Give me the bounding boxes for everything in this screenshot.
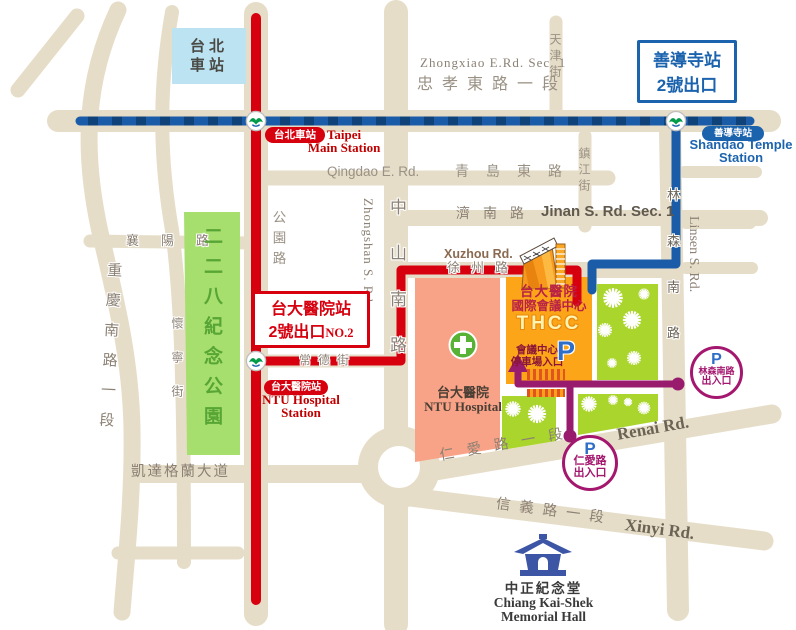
cks-memorial-hall-icon — [512, 534, 574, 580]
ntu-station-name-en-2: Station — [258, 407, 344, 420]
parking-p-icon: P — [693, 353, 740, 366]
road-label-ketagalan-zh: 凱達格蘭大道 — [131, 465, 230, 480]
road-label-tianjin-zh: 天津街 — [549, 33, 561, 81]
shandao-exit2-line1: 善導寺站 — [640, 48, 734, 73]
taipei-station-name-en: Taipei Main Station — [300, 129, 388, 154]
shandao-exit2-line2: 2號出口 — [640, 73, 734, 98]
cks-label-en1: Chiang Kai-Shek — [486, 596, 601, 610]
cks-memorial-label: 中正紀念堂 Chiang Kai-Shek Memorial Hall — [486, 582, 601, 624]
shandao-station-name-en: Shandao Temple Station — [686, 139, 796, 164]
driveway-hatch-upper — [527, 369, 565, 380]
road-label-zhongxiao-en: Zhongxiao E.Rd. Sec. 1 — [420, 56, 566, 69]
road-label-zhongshan-zh: 中山南路 — [388, 198, 405, 382]
parking-linsen-line1: 林森南路 — [693, 366, 740, 376]
road-label-xuzhou-en: Xuzhou Rd. — [444, 248, 513, 261]
mrt-station-icon-taipei — [245, 110, 267, 132]
thcc-label-line2: 國際會議中心 — [504, 299, 594, 314]
mrt-logo-icon — [245, 350, 267, 372]
parking-renai-line2: 出入口 — [565, 467, 615, 479]
road-label-zhenjiang-zh: 鎮江街 — [578, 147, 590, 195]
mrt-logo-icon — [245, 110, 267, 132]
road-label-gongyuan-zh: 公園路 — [271, 210, 285, 272]
taipei-station-building: 台北 車站 — [172, 28, 246, 84]
parking-renai-line1: 仁愛路 — [565, 455, 615, 467]
thcc-acronym: THCC — [504, 314, 594, 334]
ntu-hospital-label: 台大醫院 NTU Hospital — [420, 386, 506, 414]
road-label-linsen-zh: 林森南路 — [666, 188, 679, 372]
driveway-hatch-lower — [527, 389, 565, 397]
parking-renai-entrance-sign: P 仁愛路 出入口 — [562, 435, 618, 491]
ntu-exit2-text: 2號出口 — [268, 324, 325, 341]
cks-label-zh: 中正紀念堂 — [486, 582, 601, 596]
ntu-exit2-box: 台大醫院站 2號出口NO.2 — [252, 291, 370, 348]
hospital-cross-icon — [448, 330, 478, 360]
road-label-zhongxiao-zh: 忠孝東路一段 — [417, 77, 567, 93]
taipei-access-map: 台北 車站 — [0, 0, 796, 630]
road-label-qingdao-en: Qingdao E. Rd. — [327, 165, 419, 179]
taipei-station-building-label-1: 台北 — [172, 37, 246, 56]
ntu-exit2-no: NO.2 — [325, 326, 353, 340]
mrt-logo-icon — [665, 110, 687, 132]
shandao-station-name-en-2: Station — [686, 152, 796, 165]
road-label-changde-zh: 常德街 — [299, 354, 356, 366]
shandao-exit2-box: 善導寺站 2號出口 — [637, 40, 737, 103]
ntu-hospital-label-en: NTU Hospital — [420, 400, 506, 414]
parking-route-dot-linsen — [672, 378, 685, 391]
mrt-station-icon-shandao — [665, 110, 687, 132]
road-label-huaining-zh: 懷寧街 — [171, 317, 183, 419]
parking-linsen-line2: 出入口 — [693, 376, 740, 387]
taipei-station-building-label-2: 車站 — [172, 56, 246, 75]
road-label-jinan-en: Jinan S. Rd. Sec. 1 — [541, 204, 674, 219]
parking-p-icon: P — [565, 442, 615, 455]
cks-label-en2: Memorial Hall — [486, 610, 601, 624]
taipei-station-name-en-2: Main Station — [300, 142, 388, 155]
road-label-jinan-zh: 濟南路 — [456, 206, 537, 220]
thcc-parking-p: P — [557, 338, 575, 365]
ntu-exit2-line2: 2號出口NO.2 — [255, 321, 367, 345]
ntu-hospital-area — [415, 278, 500, 462]
parking-linsen-entrance-sign: P 林森南路 出入口 — [690, 346, 743, 399]
228-park-label: 二二八紀念公園 — [202, 226, 221, 436]
ntu-exit2-line1: 台大醫院站 — [255, 298, 367, 321]
road-label-xuzhou-zh: 徐州路 — [447, 261, 519, 274]
road-label-qingdao-zh: 青島東路 — [455, 164, 579, 178]
ntu-station-name-en: NTU Hospital Station — [258, 394, 344, 419]
thcc-label: 台大醫院 國際會議中心 THCC — [504, 284, 594, 334]
road-label-linsen-en: Linsen S. Rd. — [686, 216, 700, 292]
thcc-label-line1: 台大醫院 — [504, 284, 594, 299]
ntu-hospital-label-zh: 台大醫院 — [420, 386, 506, 400]
mrt-station-icon-ntu-hospital — [245, 350, 267, 372]
